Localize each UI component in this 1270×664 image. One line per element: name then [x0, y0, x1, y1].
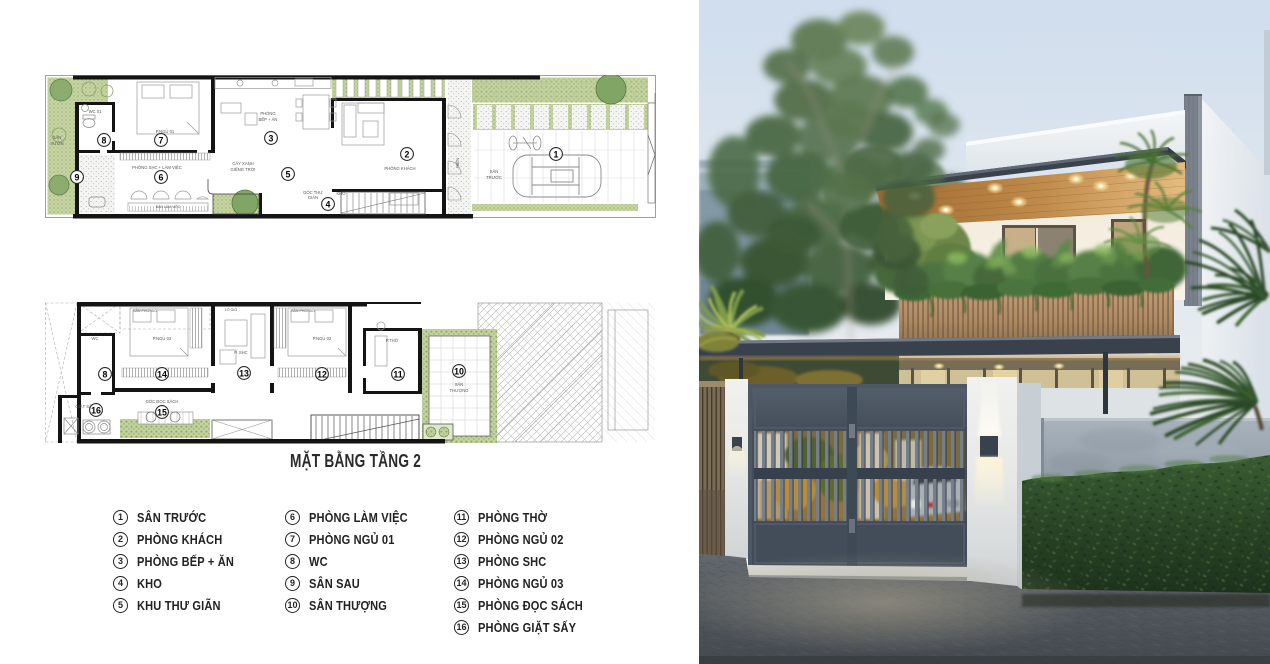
- svg-text:3: 3: [269, 134, 274, 144]
- svg-text:SÂN: SÂN: [490, 169, 499, 174]
- svg-text:12: 12: [317, 370, 327, 380]
- svg-text:8: 8: [103, 370, 108, 380]
- svg-text:1: 1: [554, 150, 559, 160]
- svg-text:PHÒNG KHÁCH: PHÒNG KHÁCH: [384, 166, 415, 171]
- svg-text:SÂN: SÂN: [455, 382, 464, 387]
- svg-text:9: 9: [75, 173, 80, 183]
- svg-text:15: 15: [157, 408, 167, 418]
- svg-text:4: 4: [326, 200, 331, 210]
- svg-text:16: 16: [91, 406, 101, 416]
- svg-text:KHO: KHO: [336, 191, 346, 196]
- svg-text:5: 5: [286, 170, 291, 180]
- svg-text:P.NGỦ 03: P.NGỦ 03: [153, 336, 172, 341]
- svg-text:2: 2: [405, 150, 410, 160]
- svg-text:11: 11: [393, 370, 402, 380]
- svg-text:10: 10: [454, 367, 464, 377]
- svg-text:HIÊN: HIÊN: [455, 158, 460, 168]
- svg-text:VƯỜN: VƯỜN: [51, 141, 64, 146]
- svg-text:P.THỜ: P.THỜ: [386, 338, 399, 343]
- svg-text:P.NGỦ 01: P.NGỦ 01: [156, 129, 175, 134]
- svg-text:13: 13: [239, 369, 249, 379]
- svg-text:CÂY XANH: CÂY XANH: [232, 161, 253, 166]
- svg-text:P.NGỦ 02: P.NGỦ 02: [313, 336, 332, 341]
- svg-text:14: 14: [157, 370, 167, 380]
- svg-text:TRƯỚC: TRƯỚC: [486, 175, 502, 180]
- svg-text:WC 01: WC 01: [89, 109, 102, 114]
- svg-text:6: 6: [159, 173, 164, 183]
- svg-text:PHÒNG: PHÒNG: [260, 111, 275, 116]
- svg-text:SÂN PHƠI ĐỒ: SÂN PHƠI ĐỒ: [133, 308, 157, 313]
- svg-text:LÔ GIÓ: LÔ GIÓ: [225, 307, 238, 312]
- svg-text:7: 7: [159, 136, 164, 146]
- svg-text:GIẾNG TRỜI: GIẾNG TRỜI: [231, 167, 256, 172]
- svg-text:PHÒNG SHC + LÀM VIỆC: PHÒNG SHC + LÀM VIỆC: [132, 165, 182, 170]
- svg-text:THƯỢNG: THƯỢNG: [449, 388, 468, 393]
- svg-text:GÓC ĐỌC SÁCH: GÓC ĐỌC SÁCH: [146, 399, 179, 404]
- svg-text:BÀN LÀM VIỆC: BÀN LÀM VIỆC: [156, 204, 181, 209]
- svg-text:SÂN PHƠI ĐỒ: SÂN PHƠI ĐỒ: [291, 308, 315, 313]
- svg-text:GIÃN: GIÃN: [308, 195, 318, 200]
- svg-text:WC: WC: [92, 336, 99, 341]
- svg-text:8: 8: [102, 136, 107, 146]
- svg-text:P. SHC: P. SHC: [234, 350, 247, 355]
- svg-text:BẾP + ĂN: BẾP + ĂN: [259, 117, 278, 122]
- svg-text:SÂN: SÂN: [53, 135, 62, 140]
